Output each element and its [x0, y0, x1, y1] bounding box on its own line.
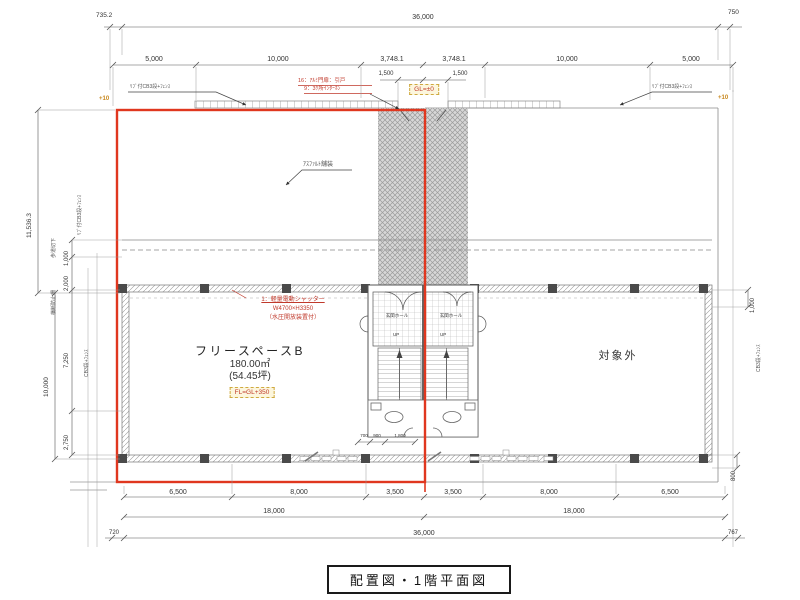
room-free-space-tsubo: (54.45坪) [229, 372, 271, 382]
approach-walkway-hatch [378, 108, 468, 285]
fence-label-right: CB3段+ﾌｪﾝｽ [757, 344, 762, 372]
dim-bottom-seg: 6,500 [169, 489, 187, 496]
fence-label-left-upper: ﾘﾌﾞ付CB3段+ﾌｪﾝｽ [78, 195, 83, 235]
level-mark-right: +10 [718, 95, 728, 101]
dim-top-total: 36,000 [412, 14, 433, 21]
gate-note-line2: 9：3ｹ所ｲﾝﾀｰﾎﾝ [304, 87, 340, 93]
dim-left-chain: 7,250 [64, 353, 70, 368]
dim-bottom-right-offset: 767 [728, 530, 738, 536]
fence-label-left-lower: CB3段+ﾌｪﾝｽ [85, 349, 90, 377]
dim-gate: 1,500 [452, 71, 467, 77]
dim-top-seg: 10,000 [556, 56, 577, 63]
gate-note-line1: 16：ｱﾙﾐ門扉：引戸 [298, 79, 345, 85]
dim-bottom-left-offset: 720 [109, 530, 119, 536]
red-note-underlines [232, 86, 372, 299]
fence-label-top-left: ﾘﾌﾞ付CB3段+ﾌｪﾝｽ [130, 85, 170, 90]
dim-bottom-half: 18,000 [263, 508, 284, 515]
room-free-space-area: 180.00㎡ [230, 360, 271, 370]
room-excluded: 対象外 [599, 351, 638, 362]
level-mark-left: +10 [99, 96, 109, 102]
wc-area [368, 400, 478, 437]
dim-bottom-half: 18,000 [563, 508, 584, 515]
dim-center: 1,800 [394, 434, 405, 439]
dim-gate: 1,500 [378, 71, 393, 77]
dim-center: 900 [373, 434, 381, 439]
shutter-note-line2: W4700×H3350 [273, 306, 313, 312]
dim-center: 700 [360, 434, 368, 439]
dim-bottom-seg: 3,500 [386, 489, 404, 496]
dim-left-chain: 2,000 [64, 276, 70, 291]
dim-bottom-seg: 3,500 [444, 489, 462, 496]
dim-top-seg: 5,000 [682, 56, 700, 63]
drawing-title-box: 配置図・1階平面図 [327, 565, 511, 594]
sidewalk-cut-label: 歩道切下 [52, 238, 57, 258]
dim-left-overall: 10,000 [44, 377, 51, 397]
plan-linework [0, 0, 800, 600]
dim-bottom-seg: 8,000 [290, 489, 308, 496]
stair-up-left-label: UP [393, 333, 399, 338]
floor-level-box: FL=GL+350 [230, 387, 275, 398]
floor-plan-canvas: 735.2 36,000 750 5,000 10,000 3,748.1 3,… [0, 0, 800, 600]
entrance-hall-right-label: 玄関ホール [440, 314, 463, 319]
ground-level-box: GL=±0 [409, 84, 439, 95]
crossing-barrier-label: 横断防止柵 [52, 290, 57, 315]
dim-right-lower: 800 [731, 471, 737, 481]
shutter-note-line1: 1：軽量電動シャッター [261, 297, 324, 303]
dim-top-left-offset: 735.2 [96, 13, 112, 20]
asphalt-label: ｱｽﾌｧﾙﾄ舗装 [303, 162, 333, 168]
dim-top-seg: 10,000 [267, 56, 288, 63]
shutter-note-line3: （水圧開放装置付） [266, 315, 320, 321]
dim-top-seg: 3,748.1 [442, 56, 465, 63]
dim-top-right-offset: 750 [728, 10, 739, 17]
dim-bottom-seg: 6,500 [661, 489, 679, 496]
dim-left-chain: 2,750 [64, 435, 70, 450]
dim-top-seg: 5,000 [145, 56, 163, 63]
dim-top-seg: 3,748.1 [380, 56, 403, 63]
stair-up-right-label: UP [440, 333, 446, 338]
dim-bottom-seg: 8,000 [540, 489, 558, 496]
dim-left-chain: 1,000 [64, 251, 70, 266]
dim-right-upper: 1,000 [750, 298, 756, 313]
dim-left-upper: 11,536.3 [27, 213, 34, 238]
top-fence-band [195, 101, 560, 108]
entrance-hall-left-label: 玄関ホール [386, 314, 409, 319]
room-free-space-name: フリースペースB [195, 345, 305, 357]
drawing-title: 配置図・1階平面図 [350, 570, 488, 589]
dim-bottom-total: 36,000 [413, 530, 434, 537]
fence-label-top-right: ﾘﾌﾞ付CB3段+ﾌｪﾝｽ [652, 85, 692, 90]
